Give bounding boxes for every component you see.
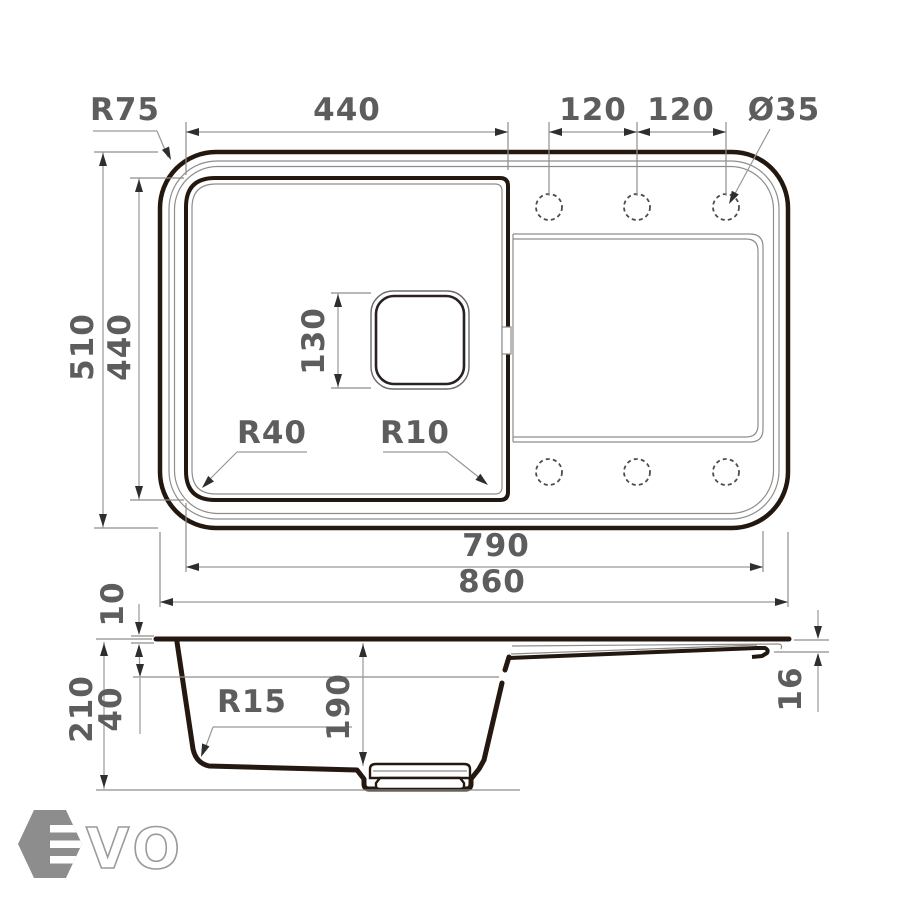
brand-logo: VO — [18, 810, 184, 882]
dim-bowl-depth: 440 — [102, 313, 138, 381]
dim-drain-size: 130 — [296, 307, 332, 375]
dim-corner-radius: R75 — [90, 92, 160, 128]
drawing-canvas: R75 440 120 120 Ø35 510 440 130 R40 R10 … — [0, 0, 900, 900]
tap-hole-4 — [536, 459, 562, 485]
logo-wordmark: VO — [86, 817, 184, 882]
dim-bottom-corner-radius: R15 — [217, 684, 287, 720]
dim-ledge-depth: 40 — [93, 686, 129, 731]
sink-technical-drawing: R75 440 120 120 Ø35 510 440 130 R40 R10 … — [0, 0, 900, 900]
dim-hole-spacing-left: 120 — [559, 92, 627, 128]
tap-hole-6 — [713, 459, 739, 485]
dim-bowl-width: 440 — [313, 92, 381, 128]
dim-bowl-inner-depth: 190 — [321, 673, 357, 741]
tap-hole-1 — [536, 194, 562, 220]
drain-base — [376, 778, 464, 789]
dim-hole-spacing-right: 120 — [647, 92, 715, 128]
drain-outer-line — [371, 291, 469, 389]
dim-overall-depth: 510 — [65, 313, 101, 381]
overflow-notch — [502, 327, 511, 354]
dim-hole-diameter: Ø35 — [748, 92, 821, 128]
side-view-dimensions: 10 210 40 190 R15 16 — [64, 581, 829, 790]
drainboard-inner-line — [513, 239, 758, 437]
rim-inner-line-2 — [175, 167, 774, 514]
rim-inner-line-1 — [169, 161, 779, 519]
dim-bowl-corner-right: R10 — [380, 415, 450, 451]
dim-overall-length: 860 — [458, 564, 526, 600]
dim-bowl-corner-left: R40 — [237, 415, 307, 451]
bowl-outline — [186, 178, 508, 500]
dim-edge-thickness: 16 — [773, 666, 809, 711]
sink-outline — [160, 152, 788, 528]
drainboard-outer-line — [513, 234, 763, 442]
tap-hole-2 — [624, 194, 650, 220]
bowl-right-wall-upper — [505, 657, 509, 670]
top-view — [160, 152, 788, 528]
tap-hole-5 — [624, 459, 650, 485]
dim-rim-thickness: 10 — [95, 581, 131, 626]
drain-square — [376, 296, 464, 384]
dim-inner-length: 790 — [462, 528, 530, 564]
